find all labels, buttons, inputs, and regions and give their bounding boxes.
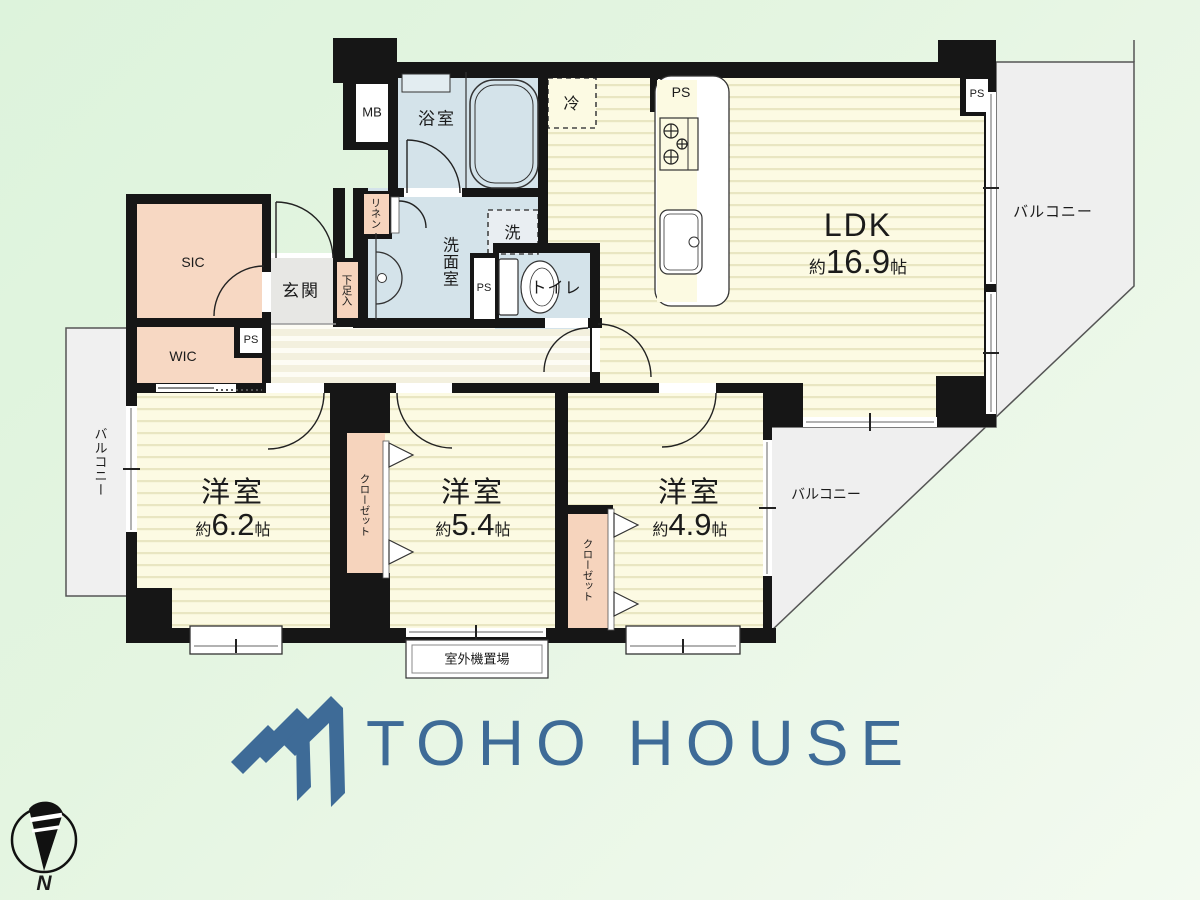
ps-box-wic (240, 328, 262, 353)
toho-house-logo-mark (231, 696, 345, 807)
logo-mark-stripe-3 (283, 696, 345, 807)
room-sic-floor (131, 198, 266, 322)
linen-cabinet (364, 194, 389, 234)
door-opening-bedroom3 (659, 383, 716, 393)
wall-bath-left (388, 70, 398, 195)
floor-plan-page: LDK 約16.9帖 洋室 約6.2帖 洋室 約5.4帖 洋室 約4.9帖 浴室… (0, 0, 1200, 900)
compass (12, 802, 76, 872)
door-opening-toilet (545, 318, 588, 328)
room-entrance-floor (266, 254, 338, 324)
door-opening-ldk (592, 328, 600, 372)
door-opening-bedroom1 (266, 383, 324, 393)
refrigerator-space (548, 78, 596, 128)
wall-toilet-right (590, 243, 600, 329)
room-bedroom2-floor (383, 388, 563, 638)
ps-box-corridor (474, 258, 495, 319)
toilet-bowl (521, 261, 559, 313)
outdoor-unit-box (406, 640, 548, 678)
wall-toilet-top (493, 243, 600, 253)
wall-block (938, 40, 996, 78)
meter-box (356, 84, 388, 142)
shoe-cabinet-box (337, 262, 358, 318)
washbasin-faucet (378, 274, 387, 283)
wall-ldk-left (538, 70, 548, 252)
room-ldk-floor (543, 72, 990, 425)
wall-sic-top (126, 194, 271, 204)
compass-needle (29, 802, 63, 871)
wall-closet1-left (330, 433, 347, 578)
floor-plan-drawing (0, 0, 1200, 900)
door-opening-sic (262, 272, 271, 312)
toilet-tank (499, 259, 518, 315)
closet2-door-edge (608, 509, 614, 630)
ps-box-topright (966, 79, 988, 112)
balcony-left (66, 328, 130, 596)
door-opening-bath (404, 188, 462, 197)
door-opening-bedroom2 (396, 383, 452, 393)
bath-counter (402, 74, 450, 92)
wall-closet2-top (555, 505, 613, 514)
wall-entry-left (262, 194, 271, 272)
closet1-door-edge (383, 441, 389, 578)
wall-entry-right (333, 188, 345, 264)
wall-left-upper (126, 194, 137, 394)
logo-mark-stripe-2 (254, 708, 311, 801)
kitchen-faucet (689, 237, 699, 247)
closet2-floor (566, 508, 610, 633)
entrance-door-arc (276, 202, 333, 258)
door-opening-wash (391, 197, 399, 233)
closet1-floor (345, 430, 385, 578)
entrance-threshold (271, 253, 333, 258)
